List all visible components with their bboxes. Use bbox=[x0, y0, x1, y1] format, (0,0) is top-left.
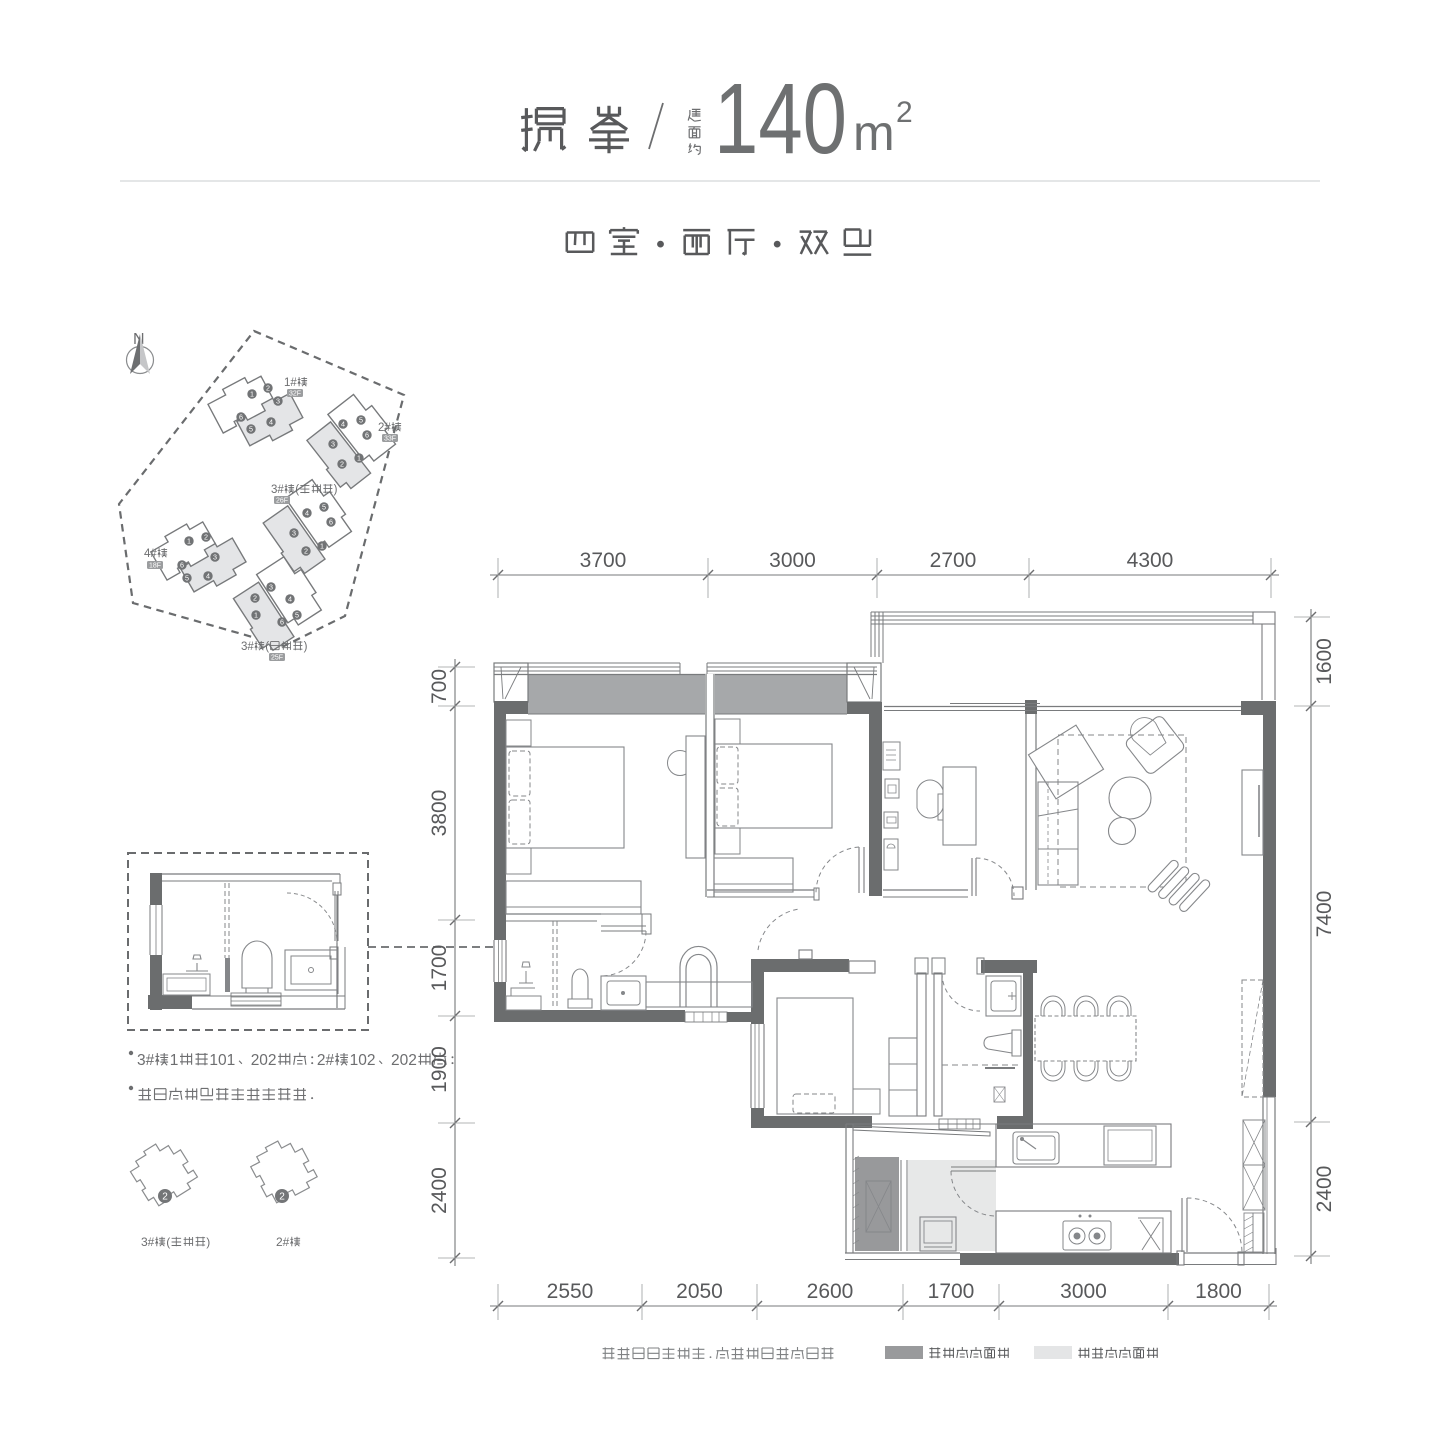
svg-text:6: 6 bbox=[280, 618, 284, 627]
svg-text:3: 3 bbox=[269, 583, 273, 592]
svg-text:1600: 1600 bbox=[1313, 638, 1336, 685]
svg-text:7400: 7400 bbox=[1313, 891, 1336, 938]
svg-text:4300: 4300 bbox=[1127, 549, 1174, 572]
svg-text:25F: 25F bbox=[271, 655, 283, 662]
svg-text:2550: 2550 bbox=[547, 1280, 594, 1303]
svg-text:6: 6 bbox=[180, 561, 184, 570]
svg-text:2: 2 bbox=[162, 1192, 168, 1203]
svg-text:2: 2 bbox=[896, 96, 913, 129]
svg-text:202: 202 bbox=[251, 1052, 277, 1069]
svg-text:140: 140 bbox=[714, 63, 847, 175]
svg-text:2400: 2400 bbox=[1313, 1166, 1336, 1213]
svg-text:2: 2 bbox=[340, 460, 344, 469]
svg-text:1: 1 bbox=[254, 611, 258, 620]
svg-text:3800: 3800 bbox=[428, 790, 451, 837]
svg-text:2600: 2600 bbox=[807, 1280, 854, 1303]
svg-text:): ) bbox=[304, 641, 308, 653]
svg-text:2: 2 bbox=[304, 547, 308, 556]
svg-text:(: ( bbox=[265, 641, 269, 653]
svg-text:1: 1 bbox=[320, 542, 324, 551]
svg-text:33F: 33F bbox=[384, 436, 396, 443]
svg-text:1: 1 bbox=[170, 1052, 179, 1069]
svg-text:18F: 18F bbox=[149, 563, 161, 570]
svg-text:m: m bbox=[853, 105, 895, 161]
svg-text:3: 3 bbox=[292, 529, 296, 538]
svg-text:3#: 3# bbox=[137, 1052, 155, 1069]
svg-text:1700: 1700 bbox=[928, 1280, 975, 1303]
svg-text:): ) bbox=[334, 484, 338, 496]
svg-text:101: 101 bbox=[209, 1052, 235, 1069]
svg-text:1900: 1900 bbox=[428, 1046, 451, 1093]
svg-text:6: 6 bbox=[329, 518, 333, 527]
svg-text:5: 5 bbox=[295, 611, 299, 620]
svg-text:3#: 3# bbox=[241, 641, 254, 653]
svg-text:2400: 2400 bbox=[428, 1167, 451, 1214]
svg-text:1: 1 bbox=[357, 454, 361, 463]
svg-text:4#: 4# bbox=[144, 548, 157, 560]
svg-text:1800: 1800 bbox=[1195, 1280, 1242, 1303]
svg-text:4: 4 bbox=[269, 418, 273, 427]
svg-text:26F: 26F bbox=[276, 498, 288, 505]
svg-text:3000: 3000 bbox=[769, 549, 816, 572]
svg-text:1: 1 bbox=[187, 537, 191, 546]
svg-text:2#: 2# bbox=[276, 1235, 290, 1249]
svg-text:2: 2 bbox=[266, 384, 270, 393]
svg-text:4: 4 bbox=[206, 572, 210, 581]
svg-text:3: 3 bbox=[331, 440, 335, 449]
svg-text:1: 1 bbox=[250, 390, 254, 399]
svg-text:700: 700 bbox=[428, 669, 451, 704]
svg-text:5: 5 bbox=[185, 574, 189, 583]
svg-text:2#: 2# bbox=[317, 1052, 335, 1069]
svg-text:3: 3 bbox=[213, 553, 217, 562]
svg-text:3: 3 bbox=[276, 397, 280, 406]
svg-text:32F: 32F bbox=[289, 391, 301, 398]
svg-text:2: 2 bbox=[279, 1192, 285, 1203]
svg-text:6: 6 bbox=[365, 431, 369, 440]
svg-text:5: 5 bbox=[322, 503, 326, 512]
svg-text:1700: 1700 bbox=[428, 945, 451, 992]
svg-text:): ) bbox=[206, 1235, 210, 1249]
svg-text:202: 202 bbox=[391, 1052, 417, 1069]
svg-text:2700: 2700 bbox=[930, 549, 977, 572]
svg-text:5: 5 bbox=[249, 425, 253, 434]
svg-text:2#: 2# bbox=[378, 422, 391, 434]
svg-text:4: 4 bbox=[341, 420, 345, 429]
svg-text:2: 2 bbox=[204, 533, 208, 542]
svg-text:3#: 3# bbox=[271, 484, 284, 496]
svg-text:4: 4 bbox=[288, 595, 292, 604]
svg-text:102: 102 bbox=[350, 1052, 376, 1069]
svg-text:3700: 3700 bbox=[580, 549, 627, 572]
svg-text:3000: 3000 bbox=[1060, 1280, 1107, 1303]
svg-text:4: 4 bbox=[305, 509, 309, 518]
svg-text:2050: 2050 bbox=[676, 1280, 723, 1303]
svg-text:6: 6 bbox=[239, 413, 243, 422]
svg-text:2: 2 bbox=[253, 594, 257, 603]
svg-text:5: 5 bbox=[359, 416, 363, 425]
svg-text:3#: 3# bbox=[141, 1235, 155, 1249]
svg-text:1#: 1# bbox=[284, 377, 297, 389]
svg-text:(: ( bbox=[295, 484, 299, 496]
svg-text:(: ( bbox=[166, 1235, 170, 1249]
